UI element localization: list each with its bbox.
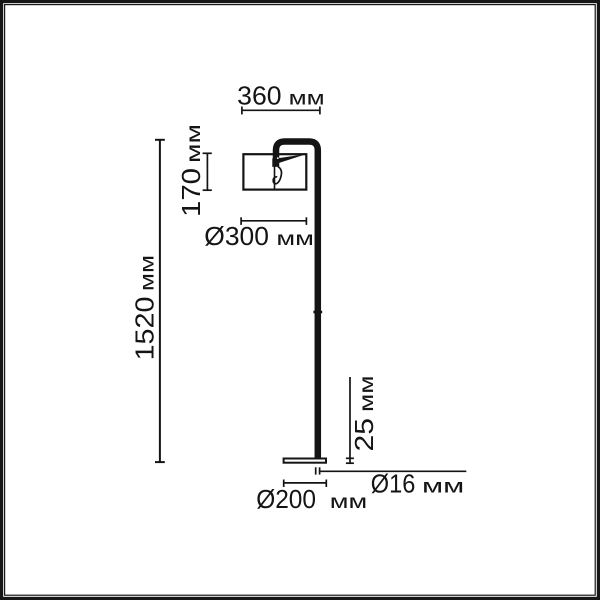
svg-text:мм: мм: [276, 228, 314, 250]
svg-text:мм: мм: [289, 87, 325, 109]
svg-text:25: 25: [351, 418, 379, 452]
svg-text:мм: мм: [137, 255, 159, 291]
svg-text:мм: мм: [422, 476, 464, 498]
svg-text:мм: мм: [183, 124, 205, 163]
svg-text:мм: мм: [356, 376, 378, 413]
svg-text:Ø16: Ø16: [371, 471, 416, 499]
svg-text:1520: 1520: [132, 297, 160, 361]
svg-text:Ø200: Ø200: [256, 486, 316, 514]
svg-text:Ø300: Ø300: [204, 223, 269, 251]
svg-text:мм: мм: [330, 491, 367, 513]
svg-text:360: 360: [237, 82, 281, 110]
svg-text:170: 170: [178, 168, 206, 217]
